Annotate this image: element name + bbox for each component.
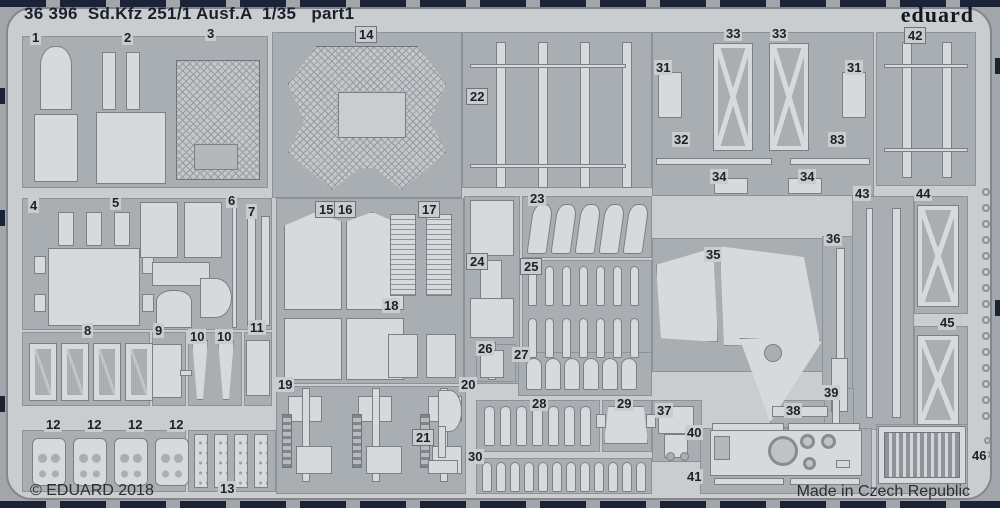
part-number-label: 28: [530, 396, 548, 411]
part-number-label: 1: [30, 30, 41, 45]
part-number-label: 10: [188, 329, 206, 344]
part-number-label: 26: [476, 341, 494, 356]
part-number-label: 24: [466, 253, 488, 270]
part-number-label: 42: [904, 27, 926, 44]
part-number-label: 12: [167, 417, 185, 432]
part-number-label: 39: [822, 385, 840, 400]
part-number-label: 25: [520, 258, 542, 275]
part-number-label: 12: [126, 417, 144, 432]
part-number-label: 4: [28, 198, 39, 213]
part-number-label: 22: [466, 88, 488, 105]
photo-etch-sheet-scan: 1231422313333314232833434434445671516172…: [0, 0, 1000, 508]
part-number-labels: 1231422313333314232833434434445671516172…: [0, 0, 1000, 508]
part-number-label: 9: [153, 323, 164, 338]
part-number-label: 19: [276, 377, 294, 392]
part-number-label: 14: [355, 26, 377, 43]
part-number-label: 41: [685, 469, 703, 484]
made-in-text: Made in Czech Republic: [797, 483, 970, 501]
part-number-label: 12: [85, 417, 103, 432]
part-number-label: 44: [914, 186, 932, 201]
part-number-label: 31: [654, 60, 672, 75]
part-number-label: 83: [828, 132, 846, 147]
part-number-label: 36: [824, 231, 842, 246]
part-number-label: 32: [672, 132, 690, 147]
part-number-label: 11: [248, 320, 266, 335]
part-number-label: 8: [82, 323, 93, 338]
part-number-label: 27: [512, 347, 530, 362]
part-number-label: 16: [334, 201, 356, 218]
part-number-label: 6: [226, 193, 237, 208]
part-number-label: 2: [122, 30, 133, 45]
part-number-label: 33: [770, 26, 788, 41]
eduard-logo: eduard: [901, 2, 974, 28]
copyright-text: © EDUARD 2018: [30, 482, 154, 500]
part-number-label: 10: [215, 329, 233, 344]
part-number-label: 7: [246, 204, 257, 219]
part-number-label: 33: [724, 26, 742, 41]
part-number-label: 46: [970, 448, 988, 463]
part-number-label: 30: [466, 449, 484, 464]
part-number-label: 45: [938, 315, 956, 330]
part-number-label: 23: [528, 191, 546, 206]
part-number-label: 34: [798, 169, 816, 184]
part-number-label: 21: [412, 429, 434, 446]
part-number-label: 29: [615, 396, 633, 411]
part-number-label: 20: [459, 377, 477, 392]
part-number-label: 17: [418, 201, 440, 218]
part-number-label: 35: [704, 247, 722, 262]
part-number-label: 12: [44, 417, 62, 432]
part-number-label: 40: [685, 425, 703, 440]
part-number-label: 18: [382, 298, 400, 313]
part-number-label: 31: [845, 60, 863, 75]
sheet-title: 36 396 Sd.Kfz 251/1 Ausf.A 1/35 part1: [24, 4, 354, 24]
part-number-label: 3: [205, 26, 216, 41]
part-number-label: 5: [110, 195, 121, 210]
part-number-label: 34: [710, 169, 728, 184]
part-number-label: 38: [784, 403, 802, 418]
part-number-label: 13: [218, 481, 236, 496]
part-number-label: 37: [655, 403, 673, 418]
part-number-label: 43: [853, 186, 871, 201]
